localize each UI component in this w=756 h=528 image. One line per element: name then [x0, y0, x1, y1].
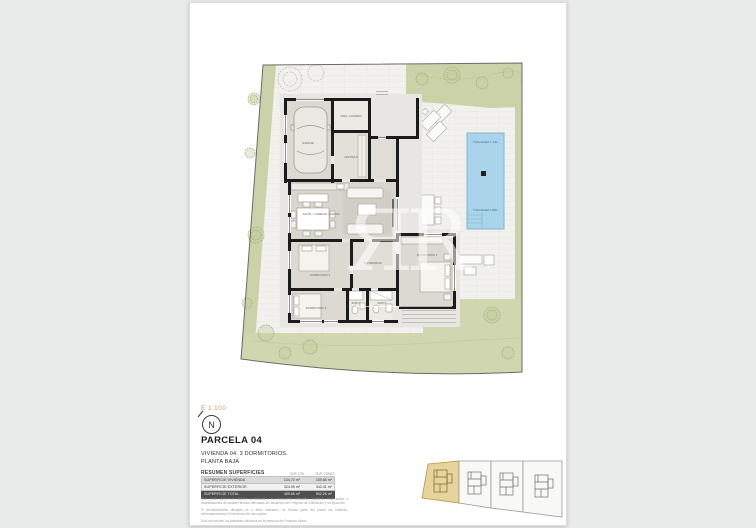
site-plan: Profundidad 1.40m Profundidad 1.80m — [190, 3, 568, 527]
key-plan — [422, 461, 562, 517]
row-label: SUPERFICIE EXTERIOR — [202, 485, 270, 489]
disclaimer-text: Este plano carece de carácter contractua… — [201, 497, 348, 526]
room-label-entry-hall: VESTÍBULO — [344, 156, 358, 159]
surfaces-col-const: SUP. CONST. — [305, 472, 335, 476]
table-row: SUPERFICIE EXTERIOR 324.95 m² 342.41 m² — [201, 484, 335, 492]
row-util: 459.65 m² — [270, 492, 302, 496]
car — [291, 107, 330, 173]
viewer-background: Profundidad 1.40m Profundidad 1.80m — [0, 0, 756, 528]
pool-depth-shallow-label: Profundidad 1.40m — [473, 140, 499, 144]
row-label: SUPERFICIE VIVIENDA — [202, 478, 270, 482]
row-util: 134.70 m² — [270, 478, 302, 482]
surfaces-col-util: SUP. ÚTIL — [275, 472, 305, 476]
room-label-hall: DISTRIBUIDOR — [364, 262, 381, 265]
row-util: 324.95 m² — [270, 485, 302, 489]
key-plan-parcel-3 — [491, 461, 523, 512]
row-const: 342.41 m² — [302, 485, 334, 489]
surfaces-table-title: RESUMEN SUPERFICIES — [201, 470, 275, 476]
room-label-bath1: BAÑO 1 — [378, 302, 387, 305]
surfaces-table: RESUMEN SUPERFICIES SUP. ÚTIL SUP. CONST… — [201, 468, 335, 499]
key-plan-parcel-04-highlight — [422, 461, 459, 503]
pool-depth-deep-label: Profundidad 1.80m — [473, 208, 499, 212]
plan-sheet-page: Profundidad 1.40m Profundidad 1.80m — [189, 2, 567, 526]
room-label-bedroom3: DORMITORIO 3 — [306, 306, 327, 310]
bed-bedroom2 — [299, 245, 329, 271]
table-row: SUPERFICIE VIVIENDA 134.70 m² 159.85 m² — [201, 476, 335, 484]
room-label-bath2: BAÑO 2 — [352, 302, 361, 305]
row-const: 159.85 m² — [302, 478, 334, 482]
scale-label: E 1:100 — [201, 405, 226, 412]
disclaimer-p1: Este plano carece de carácter contractua… — [201, 497, 348, 506]
garden-feature — [481, 171, 486, 176]
swimming-pool: Profundidad 1.40m Profundidad 1.80m — [467, 133, 504, 229]
row-const: 502.26 m² — [302, 492, 334, 496]
room-label-laundry: ASEO - LAVADERO — [340, 115, 362, 118]
disclaimer-p2: El amueblamiento dibujado es a título in… — [201, 508, 348, 517]
room-label-bedroom2: DORMITORIO 2 — [310, 273, 331, 277]
north-letter: N — [208, 420, 215, 430]
page-subtitle-2: PLANTA BAJA — [201, 459, 239, 465]
watermark-divider — [356, 306, 452, 307]
surfaces-table-header: RESUMEN SUPERFICIES SUP. ÚTIL SUP. CONST… — [201, 468, 335, 476]
row-label: SUPERFICIE TOTAL — [202, 492, 270, 496]
hall-room — [353, 242, 396, 288]
sofa-set — [343, 188, 394, 234]
page-title: PARCELA 04 — [201, 435, 262, 446]
page-subtitle-1: VIVIENDA 04. 3 DORMITORIOS. — [201, 451, 288, 457]
room-label-bedroom1: DORMITORIO 1 — [417, 253, 438, 257]
disclaimer-p3: Solo se incluyen los acabados descritos … — [201, 519, 348, 523]
north-arrow-icon: N — [202, 415, 221, 434]
room-label-garage: GARAJE — [302, 141, 314, 145]
